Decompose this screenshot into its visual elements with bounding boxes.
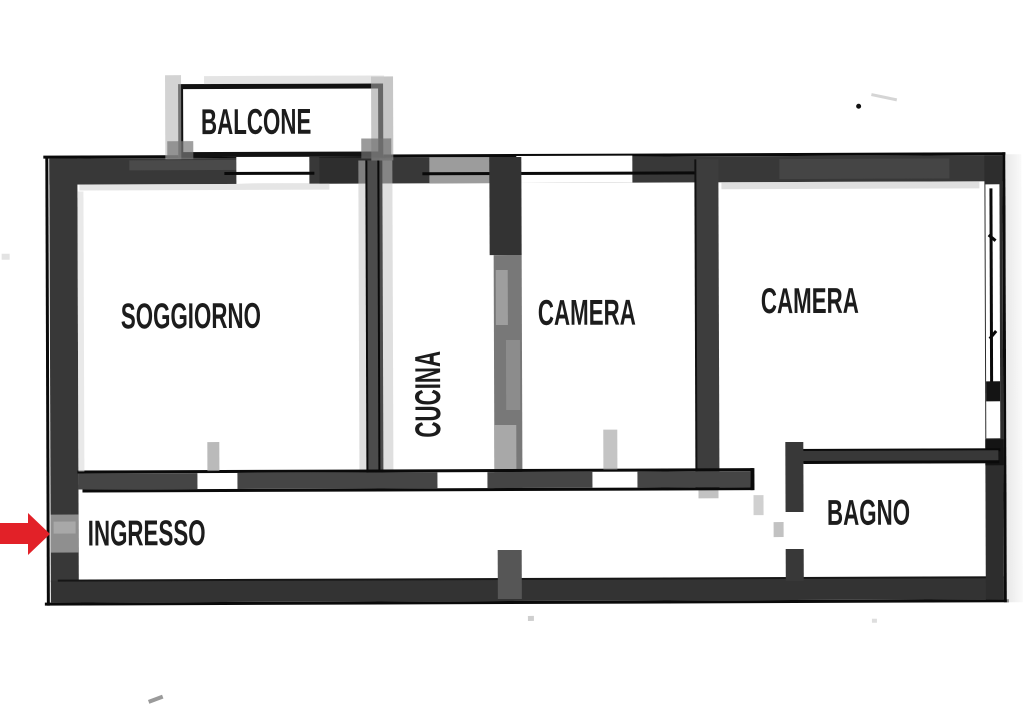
scan-speck — [872, 619, 877, 623]
door-opening-balcone — [236, 157, 309, 184]
corridor-wall-end-cap — [750, 468, 754, 490]
scan-smudge — [753, 495, 763, 515]
room-label-soggiorno: SOGGIORNO — [121, 295, 261, 337]
window-camera-1 — [516, 156, 632, 183]
wall-camera1-camera2 — [695, 159, 719, 489]
wall-texture — [496, 270, 508, 325]
window-frame-chunk — [986, 381, 1000, 401]
scan-smudge — [871, 93, 897, 101]
bagno-left-wall-lower — [786, 549, 804, 581]
scan-tick — [148, 695, 163, 704]
corridor-wall-segment — [487, 472, 592, 488]
inner-wall-shadow — [77, 191, 84, 471]
bagno-left-wall-upper — [785, 442, 803, 512]
door-frame-shadow — [603, 430, 617, 470]
entrance-arrow — [0, 513, 50, 555]
room-label-cucina: CUCINA — [407, 351, 449, 438]
corridor-wall-segment — [637, 471, 750, 487]
entrance-door-texture — [54, 522, 76, 534]
scan-smudge — [204, 75, 384, 84]
wall-cucina-camera1-top — [489, 157, 521, 255]
entrance-arrow-head — [28, 513, 50, 555]
ink-dot — [856, 104, 861, 109]
entrance-arrow-shaft — [0, 523, 28, 544]
scan-smudge — [774, 522, 784, 537]
wall-texture — [494, 425, 516, 470]
room-label-camera-1: CAMERA — [538, 292, 636, 334]
ingresso-pillar — [498, 550, 522, 599]
bagno-inner-line — [803, 460, 999, 464]
inner-wall-shadow — [721, 181, 979, 189]
inner-wall-shadow — [79, 184, 329, 191]
corridor-wall-segment — [78, 473, 197, 489]
floor-plan-scan: BALCONE SOGGIORNO CUCINA CAMERA CAMERA I… — [0, 0, 1024, 707]
room-label-balcone: BALCONE — [201, 101, 312, 143]
wall-soggiorno-cucina — [366, 160, 383, 478]
floor-plan: BALCONE SOGGIORNO CUCINA CAMERA CAMERA I… — [0, 0, 1024, 707]
right-edge-smudge — [1005, 154, 1023, 602]
scan-speck — [528, 616, 534, 621]
room-label-ingresso: INGRESSO — [88, 512, 206, 554]
wall-top-texture — [129, 160, 249, 170]
balcone-door-line — [224, 172, 314, 175]
window-cucina — [429, 157, 489, 183]
wall-shadow-stub — [698, 489, 718, 498]
scan-smudge — [361, 138, 391, 158]
corridor-wall-segment — [237, 472, 437, 489]
scan-smudge — [167, 141, 193, 159]
room-label-bagno: BAGNO — [827, 492, 910, 534]
door-frame-shadow — [207, 442, 219, 471]
scan-speck — [2, 254, 10, 260]
room-label-camera-2: CAMERA — [761, 280, 859, 322]
wall-top-texture — [779, 158, 949, 179]
wall-texture — [506, 340, 520, 410]
